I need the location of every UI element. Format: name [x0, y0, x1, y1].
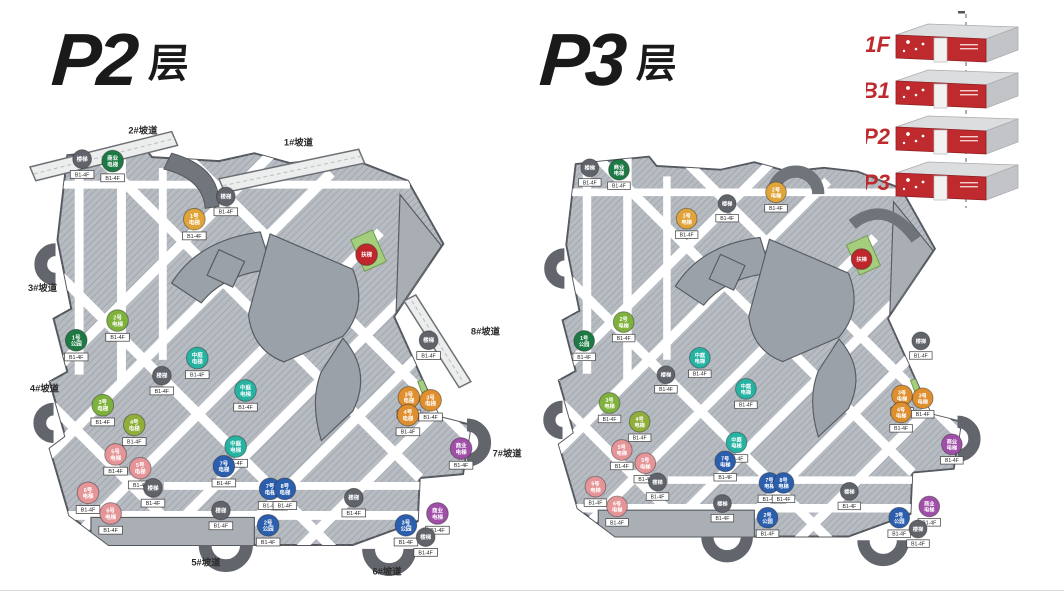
box-door — [934, 130, 947, 154]
elevator-marker: 3号电梯B1-4F — [419, 389, 443, 421]
floor-range-text: B1-4F — [261, 540, 276, 546]
floor-range-text: B1-4F — [421, 353, 436, 359]
stair-marker: 楼梯B1-4F — [579, 159, 602, 186]
box-deco-dot — [906, 40, 910, 44]
marker-label: 楼梯 — [722, 199, 733, 207]
marker-label: 电梯 — [947, 444, 958, 452]
marker-label: 电梯 — [97, 405, 109, 413]
marker-label: 电梯 — [230, 446, 242, 454]
marker-label: 5号 — [618, 443, 627, 451]
elevator-marker: 商业电梯B1-4F — [608, 159, 631, 189]
marker-label: 1号 — [683, 212, 692, 220]
slide-bottom-divider — [0, 590, 1064, 591]
legend-level-p2: P2 — [866, 116, 1018, 154]
floor-range-text: B1-4F — [659, 387, 673, 393]
box-deco-dot — [915, 94, 918, 97]
marker-label: 电梯 — [135, 468, 147, 476]
marker-label: 电梯 — [590, 486, 601, 494]
marker-label: 电梯 — [107, 161, 119, 169]
box-deco-line — [960, 186, 978, 187]
elevator-marker: 扶梯 — [356, 244, 378, 266]
floor-range-text: B1-4F — [612, 184, 626, 190]
plan-title-p3: P3 层 — [540, 30, 677, 91]
floor-range-text: B1-4F — [155, 389, 170, 395]
legend-label-b1: B1 — [866, 78, 890, 103]
marker-label: 3号 — [98, 398, 107, 406]
floor-range-text: B1-4F — [842, 504, 856, 510]
box-deco-line — [960, 44, 978, 45]
plan-title-p2-suffix: 层 — [146, 31, 190, 91]
stair-marker: 楼梯B1-4F — [417, 331, 441, 360]
floor-range-text: B1-4F — [916, 412, 930, 418]
floor-range-text: B1-4F — [914, 353, 928, 359]
floor-range-text: B1-4F — [347, 511, 362, 517]
box-deco-dot — [906, 86, 910, 90]
marker-label: 电梯 — [695, 357, 706, 365]
marker-label: 公园 — [71, 340, 83, 348]
ramp-label: 5#坡道 — [191, 557, 221, 568]
floor-range-text: B1-4F — [603, 417, 617, 423]
floor-range-text: B1-4F — [418, 550, 433, 556]
marker-label: 3号 — [919, 391, 928, 399]
slide-canvas: P2 层 P3 层 — [0, 0, 1064, 597]
marker-label: 3号 — [605, 396, 614, 404]
elevator-marker: 6号电梯B1-4F — [99, 503, 123, 535]
box-deco-dot — [922, 43, 925, 46]
elevator-marker: 6号电梯B1-4F — [76, 482, 100, 514]
elevator-marker: 中庭电梯B1-4F — [234, 380, 258, 412]
box-deco-dot — [922, 89, 925, 92]
box-deco-line — [960, 140, 978, 141]
marker-label: 1号 — [580, 334, 589, 342]
marker-label: 楼梯 — [147, 484, 159, 492]
stair-marker: 楼梯B1-4F — [214, 187, 238, 216]
marker-label: 电梯 — [432, 513, 444, 521]
marker-label: 3号 — [898, 388, 907, 396]
stair-marker: 楼梯B1-4F — [646, 473, 669, 500]
ramp-label: 6#坡道 — [372, 566, 402, 577]
marker-label: 电梯 — [771, 191, 782, 199]
elevator-marker: 中庭电梯B1-4F — [735, 379, 758, 409]
floor-range-text: B1-4F — [75, 172, 90, 178]
marker-label: 1号 — [72, 333, 81, 341]
marker-label: 楼梯 — [156, 372, 168, 380]
marker-label: 电梯 — [105, 513, 117, 521]
plan-title-p3-main: P3 — [538, 30, 625, 91]
stair-marker: 楼梯B1-4F — [655, 366, 678, 393]
floor-range-text: B1-4F — [777, 497, 791, 503]
floor-range-text: B1-4F — [103, 528, 118, 534]
box-deco-line — [960, 94, 978, 95]
marker-label: 电梯 — [720, 460, 731, 468]
elevator-marker: 2号公园B1-4F — [756, 507, 779, 537]
marker-label: 电梯 — [614, 169, 625, 177]
floor-range-text: B1-4F — [892, 532, 906, 538]
legend-label-p2: P2 — [866, 124, 891, 149]
elevator-marker: 4号电梯B1-4F — [890, 402, 913, 432]
box-door — [934, 176, 947, 200]
ramp-label: 7#坡道 — [493, 447, 523, 458]
elevator-marker: 3号公园B1-4F — [394, 514, 418, 546]
marker-label: 6号 — [613, 499, 622, 507]
box-deco-dot — [906, 178, 910, 182]
box-deco-dot — [906, 132, 910, 136]
marker-label: 4号 — [130, 418, 139, 426]
elevator-marker: 7号电梯B1-4F — [714, 451, 737, 481]
marker-label: 7号 — [220, 459, 229, 467]
elevator-marker: 1号公园B1-4F — [64, 329, 88, 361]
floor-range-text: B1-4F — [238, 405, 253, 411]
marker-label: 电梯 — [618, 321, 629, 329]
floor-range-text: B1-4F — [945, 458, 959, 464]
marker-label: 电梯 — [110, 454, 122, 462]
marker-label: 商业 — [614, 163, 625, 171]
floor-range-text: B1-4F — [105, 176, 120, 182]
stair-marker: 楼梯B1-4F — [141, 479, 165, 508]
marker-label: 中庭 — [695, 351, 706, 359]
marker-label: 中庭 — [240, 383, 252, 391]
marker-label: 电梯 — [189, 219, 201, 227]
marker-label: 扶梯 — [361, 251, 373, 259]
marker-label: 楼梯 — [215, 506, 227, 514]
floor-range-text: B1-4F — [146, 501, 161, 507]
floor-range-text: B1-4F — [81, 508, 96, 514]
box-deco-line — [960, 136, 978, 137]
stair-marker: 楼梯B1-4F — [70, 150, 94, 179]
marker-label: 3号 — [405, 390, 414, 398]
marker-label: 公园 — [894, 517, 905, 525]
box-deco-dot — [903, 96, 905, 98]
marker-label: 电梯 — [129, 424, 141, 432]
stair-marker: 楼梯B1-4F — [150, 366, 174, 395]
elevator-marker: 4号电梯B1-4F — [122, 414, 146, 446]
marker-label: 电梯 — [612, 506, 623, 514]
floor-range-text: B1-4F — [617, 336, 631, 342]
elevator-marker: 4号电梯B1-4F — [396, 404, 420, 436]
marker-label: 电梯 — [604, 402, 615, 410]
marker-label: 4号 — [636, 415, 645, 423]
parking-floorplan-svg: 楼梯B1-4F商业电梯B1-4F1号电梯B1-4F楼梯B1-4F扶梯2号电梯B1… — [26, 122, 528, 588]
elevator-marker: 5号电梯B1-4F — [104, 444, 128, 476]
box-deco-dot — [915, 48, 918, 51]
elevator-marker: 2号公园B1-4F — [256, 514, 280, 546]
ramp-label: 2#坡道 — [128, 125, 158, 136]
marker-label: 楼梯 — [348, 494, 360, 502]
floor-range-text: B1-4F — [583, 180, 597, 186]
stair-marker: 楼梯B1-4F — [910, 332, 933, 359]
elevator-marker: 商业电梯B1-4F — [941, 434, 964, 464]
elevator-marker: 2号电梯B1-4F — [612, 312, 635, 342]
marker-label: 中庭 — [192, 351, 204, 359]
box-deco-dot — [922, 135, 925, 138]
marker-label: 扶梯 — [856, 255, 867, 263]
marker-label: 电梯 — [403, 397, 415, 405]
elevator-marker: 1号电梯B1-4F — [183, 208, 207, 240]
marker-label: 电梯 — [778, 482, 789, 490]
marker-label: 商业 — [107, 154, 119, 162]
legend-axis-tick — [958, 11, 965, 14]
stair-marker: 楼梯B1-4F — [838, 482, 861, 509]
elevator-marker: 8号电梯B1-4F — [273, 478, 297, 510]
marker-label: 楼梯 — [652, 478, 663, 486]
elevator-marker: 1号公园B1-4F — [573, 331, 596, 361]
marker-label: 2号 — [772, 185, 781, 193]
elevator-marker: 6号电梯B1-4F — [606, 496, 629, 526]
marker-label: 5号 — [111, 447, 120, 455]
floor-range-text: B1-4F — [718, 475, 732, 481]
marker-label: 公园 — [579, 340, 590, 348]
box-deco-line — [960, 48, 978, 49]
elevator-marker: 扶梯 — [851, 249, 872, 270]
elevator-marker: 3号电梯B1-4F — [91, 394, 115, 426]
floor-range-text: B1-4F — [69, 355, 84, 361]
marker-label: 电梯 — [741, 388, 752, 396]
marker-label: 4号 — [404, 408, 413, 416]
floor-range-text: B1-4F — [761, 532, 775, 538]
stair-marker: 楼梯B1-4F — [907, 520, 930, 547]
elevator-marker: 1号电梯B1-4F — [675, 208, 698, 238]
elevator-marker: 8号电梯B1-4F — [772, 473, 795, 503]
floor-range-text: B1-4F — [680, 233, 694, 239]
marker-label: 3号 — [895, 511, 904, 519]
floor-range-text: B1-4F — [454, 463, 469, 469]
floor-range-text: B1-4F — [399, 540, 414, 546]
legend-label-p3: P3 — [866, 170, 890, 195]
marker-label: 电梯 — [425, 400, 437, 408]
marker-label: 公园 — [263, 525, 275, 533]
floor-range-text: B1-4F — [401, 430, 416, 436]
elevator-marker: 中庭电梯B1-4F — [689, 347, 712, 377]
marker-label: 电梯 — [924, 506, 935, 514]
plan-title-p2: P2 层 — [52, 30, 189, 91]
marker-label: 商业 — [924, 499, 935, 507]
floor-range-text: B1-4F — [589, 501, 603, 507]
floor-range-text: B1-4F — [423, 415, 438, 421]
marker-label: 商业 — [947, 437, 958, 445]
marker-label: 电梯 — [402, 414, 414, 422]
marker-label: 楼梯 — [420, 533, 432, 541]
floor-range-text: B1-4F — [720, 216, 734, 222]
floor-range-text: B1-4F — [96, 420, 111, 426]
marker-label: 公园 — [400, 525, 412, 533]
marker-label: 楼梯 — [77, 155, 89, 163]
floor-range-text: B1-4F — [127, 440, 142, 446]
floor-range-text: B1-4F — [187, 234, 202, 240]
legend-level-p3: P3 — [866, 162, 1018, 200]
floor-range-text: B1-4F — [190, 373, 205, 379]
stair-marker: 楼梯B1-4F — [414, 528, 438, 557]
marker-label: 4号 — [897, 405, 906, 413]
elevator-marker: 7号电梯B1-4F — [212, 455, 236, 487]
box-deco-dot — [915, 140, 918, 143]
marker-label: 公园 — [762, 517, 773, 525]
box-deco-line — [960, 90, 978, 91]
floor-range-text: B1-4F — [894, 426, 908, 432]
elevator-marker: 3号公园B1-4F — [888, 507, 911, 537]
legend-level-1f: 1F — [866, 24, 1018, 62]
floor-range-text: B1-4F — [108, 469, 123, 475]
marker-label: 电梯 — [617, 449, 628, 457]
marker-label: 楼梯 — [423, 336, 435, 344]
marker-label: 6号 — [84, 486, 93, 494]
elevator-marker: 4号电梯B1-4F — [628, 411, 651, 441]
ramp-label: 4#坡道 — [30, 382, 60, 393]
marker-label: 2号 — [763, 511, 772, 519]
floor-range-text: B1-4F — [769, 206, 783, 212]
box-deco-dot — [903, 50, 905, 52]
legend-level-b1: B1 — [866, 70, 1018, 108]
marker-label: 3号 — [402, 518, 411, 526]
floor-range-text: B1-4F — [217, 481, 232, 487]
marker-label: 8号 — [281, 482, 290, 490]
marker-label: 电梯 — [112, 320, 124, 328]
stair-marker: 楼梯B1-4F — [342, 488, 366, 517]
marker-label: 中庭 — [741, 382, 752, 390]
floor-range-text: B1-4F — [715, 516, 729, 522]
marker-label: 电梯 — [896, 412, 907, 420]
marker-label: 8号 — [779, 476, 788, 484]
marker-label: 6号 — [591, 480, 600, 488]
elevator-marker: 2号电梯B1-4F — [106, 310, 130, 342]
floor-range-text: B1-4F — [610, 520, 624, 526]
marker-label: 楼梯 — [717, 499, 728, 507]
marker-label: 电梯 — [83, 492, 95, 500]
marker-label: 商业 — [456, 442, 468, 450]
elevator-marker: 5号电梯B1-4F — [610, 440, 633, 470]
box-deco-dot — [903, 142, 905, 144]
floor-range-text: B1-4F — [110, 335, 125, 341]
marker-label: 楼梯 — [913, 525, 924, 533]
marker-label: 楼梯 — [220, 192, 232, 200]
marker-label: 电梯 — [897, 395, 908, 403]
marker-label: 7号 — [266, 482, 275, 490]
marker-label: 电梯 — [681, 218, 692, 226]
building-stack-legend: 1F B1 P2 — [866, 8, 1064, 210]
marker-label: 电梯 — [456, 448, 468, 456]
marker-label: 楼梯 — [585, 164, 596, 172]
marker-label: 电梯 — [192, 357, 204, 365]
elevator-marker: 中庭电梯B1-4F — [185, 347, 209, 379]
marker-label: 电梯 — [731, 442, 742, 450]
marker-label: 电梯 — [634, 421, 645, 429]
plan-title-p2-main: P2 — [50, 30, 137, 91]
marker-label: 楼梯 — [916, 337, 927, 345]
box-door — [934, 38, 947, 62]
elevator-marker: 商业电梯B1-4F — [449, 438, 473, 470]
floor-range-text: B1-4F — [633, 436, 647, 442]
marker-label: 中庭 — [731, 436, 742, 444]
ramp-label: 1#坡道 — [284, 136, 314, 147]
marker-label: 2号 — [113, 314, 122, 322]
marker-label: 6号 — [106, 506, 115, 514]
floor-range-text: B1-4F — [214, 524, 229, 530]
floor-range-text: B1-4F — [739, 403, 753, 409]
floor-range-text: B1-4F — [615, 464, 629, 470]
plan-title-p3-suffix: 层 — [634, 31, 678, 91]
floorplan-p2: 楼梯B1-4F商业电梯B1-4F1号电梯B1-4F楼梯B1-4F扶梯2号电梯B1… — [26, 122, 528, 588]
floor-range-text: B1-4F — [577, 355, 591, 361]
elevator-marker: 6号电梯B1-4F — [584, 476, 607, 506]
elevator-marker: 3号电梯B1-4F — [598, 393, 621, 423]
marker-label: 2号 — [264, 518, 273, 526]
box-deco-dot — [903, 188, 905, 190]
box-door — [934, 84, 947, 108]
marker-label: 电梯 — [218, 466, 230, 474]
marker-label: 楼梯 — [661, 371, 672, 379]
marker-label: 1号 — [190, 212, 199, 220]
legend-label-1f: 1F — [866, 32, 891, 57]
elevator-marker: 商业电梯B1-4F — [101, 150, 125, 182]
floor-range-text: B1-4F — [911, 541, 925, 547]
floor-range-text: B1-4F — [219, 210, 234, 216]
box-deco-dot — [915, 186, 918, 189]
stair-marker: 楼梯B1-4F — [716, 195, 739, 222]
marker-label: 电梯 — [240, 390, 252, 398]
floor-range-text: B1-4F — [651, 494, 665, 500]
marker-label: 电梯 — [640, 462, 651, 470]
stair-marker: 楼梯B1-4F — [209, 501, 233, 530]
marker-label: 商业 — [432, 506, 444, 514]
marker-label: 7号 — [721, 454, 730, 462]
ramp-label: 3#坡道 — [28, 282, 58, 293]
marker-label: 楼梯 — [844, 487, 855, 495]
box-deco-line — [960, 182, 978, 183]
elevator-marker: 2号电梯B1-4F — [765, 182, 788, 212]
marker-label: 2号 — [620, 315, 629, 323]
marker-label: 电梯 — [279, 488, 291, 496]
marker-label: 3号 — [426, 393, 435, 401]
marker-label: 5号 — [641, 456, 650, 464]
marker-label: 中庭 — [230, 440, 242, 448]
marker-label: 5号 — [136, 461, 145, 469]
floor-range-text: B1-4F — [278, 504, 293, 510]
stair-marker: 楼梯B1-4F — [711, 495, 734, 522]
elevator-marker: 3号电梯B1-4F — [911, 388, 934, 418]
ramp-label: 8#坡道 — [471, 325, 501, 336]
marker-label: 电梯 — [917, 397, 928, 405]
floor-range-text: B1-4F — [693, 372, 707, 378]
box-deco-dot — [922, 181, 925, 184]
